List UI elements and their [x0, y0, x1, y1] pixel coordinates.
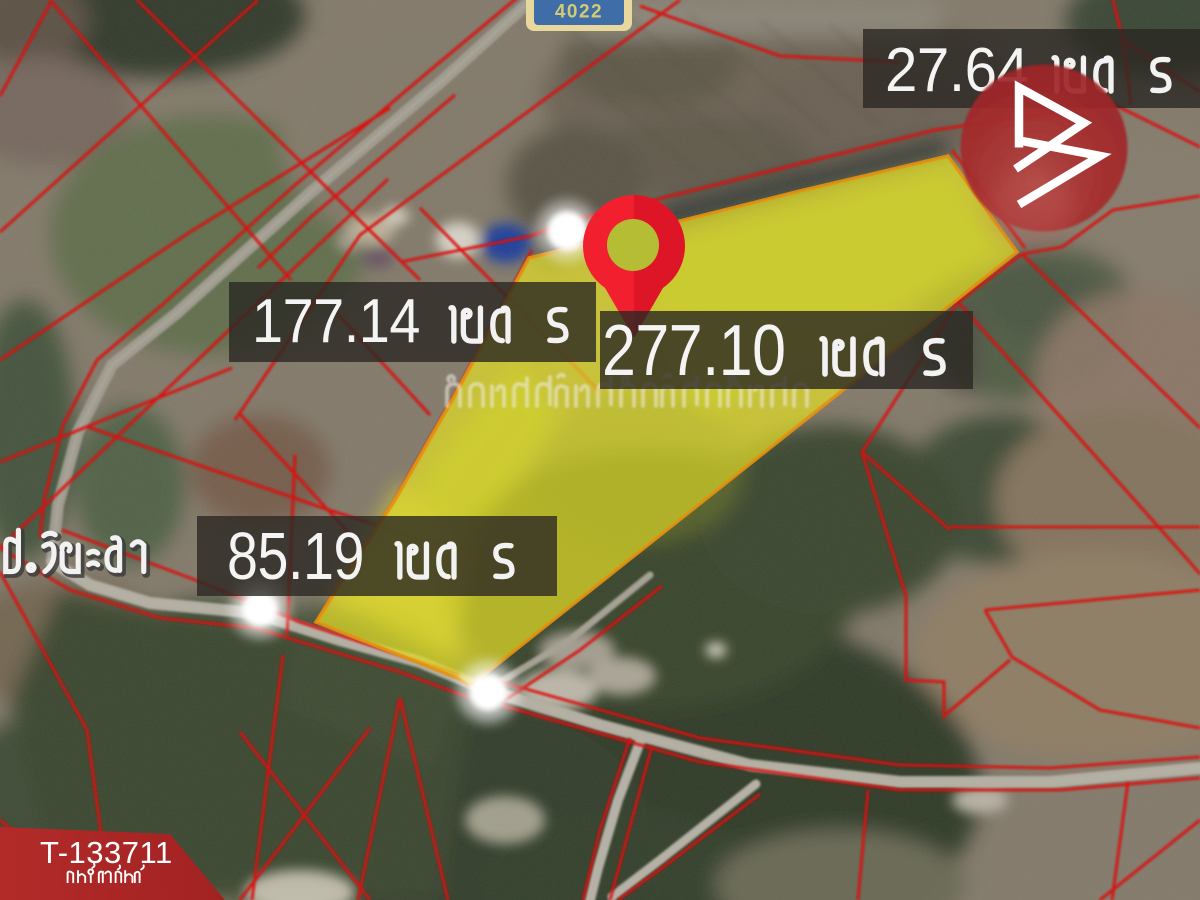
svg-text:177.14: 177.14: [252, 287, 420, 355]
svg-text:4022: 4022: [555, 2, 603, 23]
svg-text:85.19: 85.19: [227, 519, 364, 594]
svg-text:277.10: 277.10: [602, 311, 786, 391]
svg-text:T-133711: T-133711: [40, 835, 173, 870]
